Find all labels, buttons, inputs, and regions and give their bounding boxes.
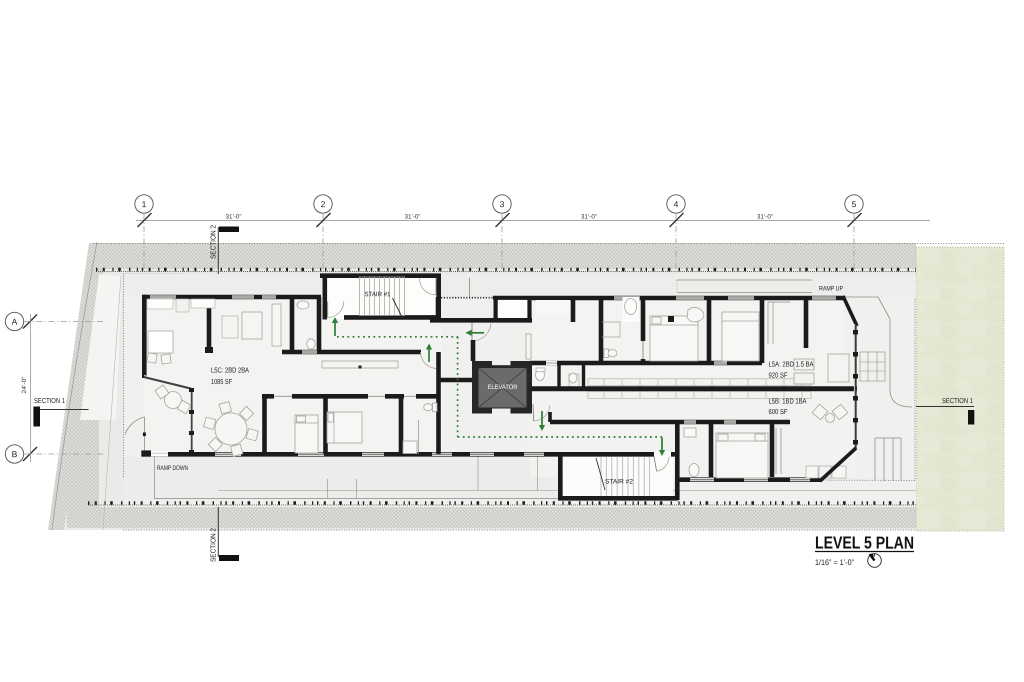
svg-text:LEVEL 5 PLAN: LEVEL 5 PLAN <box>815 533 914 553</box>
svg-text:L5C: 2BD 2BA: L5C: 2BD 2BA <box>211 366 249 375</box>
svg-text:1: 1 <box>142 199 147 209</box>
svg-text:1085 SF: 1085 SF <box>211 377 232 386</box>
svg-text:SECTION 1: SECTION 1 <box>942 396 973 405</box>
svg-text:31’-0”: 31’-0” <box>404 213 420 220</box>
svg-text:SECTION 2: SECTION 2 <box>209 225 218 259</box>
svg-text:4: 4 <box>674 199 679 209</box>
svg-text:600 SF: 600 SF <box>768 407 787 416</box>
svg-text:STAIR #1: STAIR #1 <box>364 291 390 298</box>
svg-text:31’-0”: 31’-0” <box>757 213 773 220</box>
svg-text:RAMP DOWN: RAMP DOWN <box>157 465 188 472</box>
svg-text:920 SF: 920 SF <box>768 371 787 380</box>
svg-text:A: A <box>12 317 18 327</box>
svg-text:5: 5 <box>852 199 857 209</box>
svg-text:L5A: 2BD 1.5 BA: L5A: 2BD 1.5 BA <box>768 360 813 369</box>
svg-text:SECTION 1: SECTION 1 <box>34 396 65 405</box>
svg-text:L5B: 1BD 1BA: L5B: 1BD 1BA <box>768 397 806 406</box>
svg-text:B: B <box>12 449 18 459</box>
svg-text:STAIR #2: STAIR #2 <box>605 478 633 485</box>
svg-text:SECTION 2: SECTION 2 <box>209 528 218 562</box>
svg-text:2: 2 <box>321 199 326 209</box>
svg-text:31’-0”: 31’-0” <box>225 213 241 220</box>
svg-text:3: 3 <box>500 199 505 209</box>
svg-text:RAMP UP: RAMP UP <box>819 286 843 293</box>
svg-text:1/16” = 1’-0”: 1/16” = 1’-0” <box>815 558 854 567</box>
svg-text:31’-0”: 31’-0” <box>581 213 597 220</box>
svg-text:24’-0”: 24’-0” <box>21 377 28 394</box>
svg-text:ELEVATOR: ELEVATOR <box>487 384 517 391</box>
